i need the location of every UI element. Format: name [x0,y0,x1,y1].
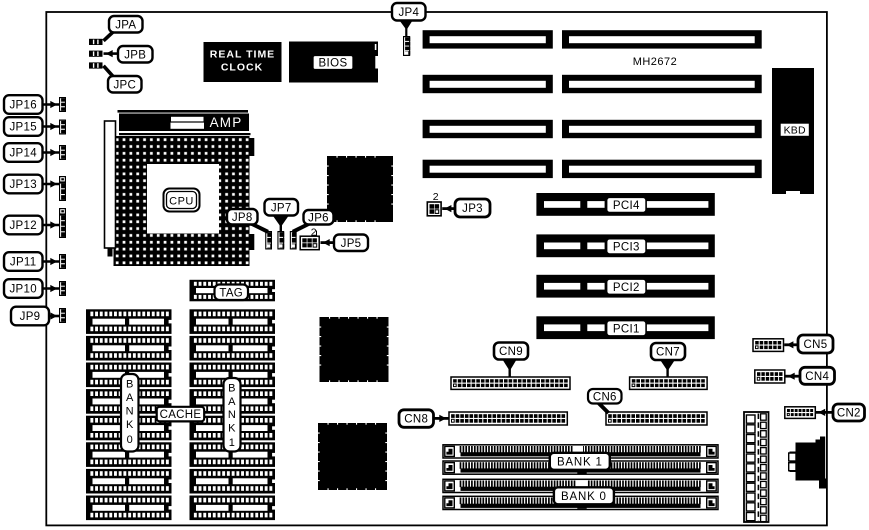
svg-text:JP8: JP8 [232,212,253,224]
svg-text:CN4: CN4 [805,371,829,383]
svg-text:N: N [228,409,236,421]
svg-text:CN9: CN9 [499,346,523,358]
svg-text:KBD: KBD [784,125,806,137]
svg-text:CPU: CPU [169,195,194,207]
svg-text:B: B [228,383,236,395]
svg-text:CN8: CN8 [404,414,428,426]
svg-text:CN7: CN7 [656,347,680,359]
svg-text:A: A [126,392,134,404]
svg-text:JP5: JP5 [341,238,362,250]
svg-text:CN2: CN2 [837,408,861,420]
svg-text:N: N [126,406,134,418]
svg-text:JP9: JP9 [20,311,41,323]
svg-text:JP10: JP10 [9,284,36,296]
svg-text:REAL TIME: REAL TIME [210,49,275,61]
svg-text:JP7: JP7 [271,202,292,214]
svg-text:1: 1 [229,437,235,449]
svg-text:2: 2 [433,191,439,203]
svg-text:MH2672: MH2672 [633,56,678,68]
svg-text:CN5: CN5 [804,339,828,351]
svg-text:PCI1: PCI1 [613,323,640,335]
svg-text:BANK 0: BANK 0 [561,491,607,503]
svg-text:TAG: TAG [219,287,243,299]
svg-text:B: B [126,379,134,391]
svg-text:BIOS: BIOS [318,57,347,69]
svg-text:K: K [126,419,134,431]
svg-text:PCI2: PCI2 [613,282,640,294]
svg-text:2: 2 [311,227,317,239]
svg-text:JPB: JPB [124,49,146,61]
svg-text:JP14: JP14 [9,148,37,160]
svg-text:JPA: JPA [115,19,136,31]
svg-text:JP6: JP6 [308,212,329,224]
svg-text:K: K [228,422,236,434]
svg-text:JPC: JPC [113,79,136,91]
svg-text:PCI3: PCI3 [613,241,640,253]
svg-text:JP16: JP16 [9,100,36,112]
svg-text:AMP: AMP [210,115,243,130]
svg-text:JP4: JP4 [398,7,419,19]
svg-text:CACHE: CACHE [160,409,202,421]
svg-text:PCI4: PCI4 [613,200,640,212]
svg-text:JP12: JP12 [9,220,36,232]
svg-text:CN6: CN6 [593,391,617,403]
svg-text:0: 0 [127,434,133,446]
svg-text:JP13: JP13 [9,179,36,191]
svg-text:JP15: JP15 [9,122,36,134]
svg-text:A: A [228,396,236,408]
svg-text:JP11: JP11 [10,257,37,269]
svg-text:JP3: JP3 [462,203,483,215]
svg-text:BANK 1: BANK 1 [557,456,603,468]
svg-text:CLOCK: CLOCK [221,62,263,74]
